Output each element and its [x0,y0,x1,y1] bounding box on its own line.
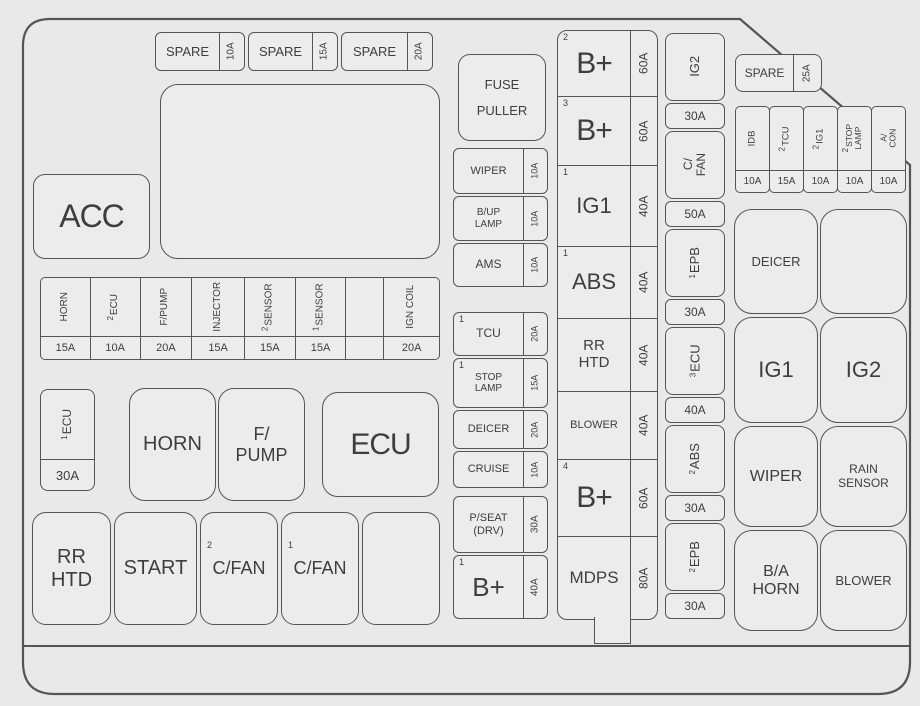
fuse-cell-sensor2: 2SENSOR 15A [245,278,296,359]
amp-rating: 15A [320,43,331,61]
fuse-label: B+ [576,114,612,148]
amp-rating: 15A [296,336,346,359]
fuse-label: AMS [475,258,501,271]
fuse-label: B+ [576,47,612,81]
fuse-tcu: 1TCU 20A [453,312,548,356]
relay-label: WIPER [750,468,802,486]
fuse-row-bplus3: 3B+ 60A [558,97,657,166]
fuse-label: B+ [576,481,612,515]
fuse-row-rr-htd: RR HTD 40A [558,319,657,392]
horn-relay: HORN [129,388,216,501]
fuse-bup-lamp: B/UP LAMP 10A [453,196,548,241]
fuse-ams: AMS 10A [453,243,548,287]
fuse-epb1-label: 1EPB [665,229,725,297]
amp-rating: 20A [141,336,192,359]
relay-ba-horn: B/A HORN [734,530,818,631]
fuse-row-bplus4: 4B+ 60A [558,460,657,537]
fuse-label: IG1 [815,128,826,143]
fuse-row-abs: 1ABS 40A [558,247,657,319]
fuse-cell-ign-coil: IGN COIL 20A [384,278,439,359]
relay-empty-slot [820,209,907,314]
fuse-label: INJECTOR [212,282,223,332]
amp-rating: 20A [415,43,426,61]
fuse-label: IGN COIL [405,285,416,329]
spare-fuse-2: SPARE 15A [248,32,338,71]
amp-rating [346,336,383,359]
fuse-epb2-amp: 30A [665,593,725,619]
fuse-ecu3-label: 3ECU [665,327,725,395]
amp-rating: 10A [227,43,238,61]
start-relay: START [114,512,197,625]
spare-fuse-3: SPARE 20A [341,32,433,71]
fuse-puller-label: FUSE PULLER [477,72,528,124]
fuse-cell-sensor1: 1SENSOR 15A [296,278,347,359]
amp-rating: 40A [638,344,651,365]
amp-rating: 60A [638,487,651,508]
fuse-label: IDB [747,130,758,146]
relay-label: START [124,557,188,580]
fuse-cfan-label: C/ FAN [665,131,725,199]
fuse-label: ECU [60,409,74,434]
fuse-label: EPB [687,247,702,273]
fuse-ecu3-amp: 40A [665,397,725,423]
amp-rating: 80A [638,567,651,588]
main-fuse-column: 2B+ 60A 3B+ 60A 1IG1 40A 1ABS 40A RR HTD… [557,30,658,620]
fuse-row-ig1: 1IG1 40A [558,166,657,247]
fuse-label: BLOWER [570,419,618,431]
fuse-ig2-amp: 30A [665,103,725,129]
cfan2-relay: 2 C/FAN [200,512,278,625]
relay-label: IG2 [846,357,881,383]
fuse-label: EPB [687,541,702,567]
fuse-row-mdps: MDPS 80A [558,537,657,619]
engine-fuse-strip: HORN 15A 2ECU 10A F/PUMP 20A INJECTOR 15… [40,277,440,360]
fuse-label: P/SEAT (DRV) [469,512,507,537]
relay-label: RR HTD [51,546,92,591]
fuse-deicer: DEICER 20A [453,410,548,449]
amp-rating: 20A [531,421,540,437]
fuse-epb2-label: 2EPB [665,523,725,591]
fusebox-diagram: SPARE 10A SPARE 15A SPARE 20A FUSE PULLE… [0,0,920,706]
amp-rating: 60A [638,120,651,141]
amp-rating: 40A [530,578,541,596]
fuse-cell-horn: HORN 15A [41,278,91,359]
relay-ig2: IG2 [820,317,907,423]
fuse-label: TCU [781,126,792,146]
fuel-pump-relay: F/ PUMP [218,388,305,501]
fuse-wiper: WIPER 10A [453,148,548,194]
relay-ig1: IG1 [734,317,818,423]
ecu-relay: ECU [322,392,439,497]
amp-rating: 10A [872,170,905,192]
amp-rating: 30A [530,516,541,534]
fuse-label: A/ CON [878,129,897,148]
acc-box: ACC [33,174,150,259]
fuse-cell-ig1-2: 2IG1 10A [803,106,838,193]
fuse-label: SENSOR [314,283,325,325]
relay-label: HORN [143,433,202,456]
relay-label: F/ PUMP [235,424,287,464]
rr-htd-relay: RR HTD [32,512,111,625]
relay-label: B/A HORN [752,563,799,599]
fuse-label: MDPS [569,568,618,587]
fuse-puller-box: FUSE PULLER [458,54,546,141]
relay-rain-sensor: RAIN SENSOR [820,426,907,527]
relay-label: C/FAN [212,558,265,579]
amp-rating: 15A [192,336,244,359]
amp-rating: 30A [41,459,94,490]
amp-rating: 10A [838,170,871,192]
fuse-label: B+ [472,572,505,603]
amp-rating: 15A [770,170,803,192]
fuse-cfan-amp: 50A [665,201,725,227]
amp-rating: 60A [638,53,651,74]
relay-label: C/FAN [293,558,346,579]
fuse-cell-ecu2: 2ECU 10A [91,278,141,359]
spare-fuse-1: SPARE 10A [155,32,245,71]
fuse-row-blower: BLOWER 40A [558,392,657,460]
empty-reserved-box [160,84,440,259]
fuse-label: DEICER [468,423,510,435]
amp-rating: 25A [802,64,813,82]
spare-fuse-label: SPARE [736,55,793,91]
relay-blower: BLOWER [820,530,907,631]
fuse-cell-injector: INJECTOR 15A [192,278,245,359]
fuse-label: RR HTD [579,338,610,372]
amp-rating: 40A [638,415,651,436]
fuse-label: TCU [476,327,501,340]
fuse-cell-empty [346,278,384,359]
cfan1-relay: 1 C/FAN [281,512,359,625]
relay-wiper: WIPER [734,426,818,527]
fuse-label: ABS [687,443,702,469]
amp-rating: 10A [91,336,140,359]
fuse-cell-idb: IDB 10A [735,106,770,193]
fuse-label: CRUISE [468,463,510,475]
amp-rating: 40A [638,272,651,293]
relay-label: ECU [350,428,410,462]
amp-rating: 10A [531,257,540,273]
fuse-label: C/ FAN [681,153,708,176]
fuse-label: STOP LAMP [475,372,502,394]
fuse-cell-acon: A/ CON 10A [871,106,906,193]
amp-rating: 10A [531,461,540,477]
fuse-label: F/PUMP [160,288,171,326]
fuse-row-bplus2: 2B+ 60A [558,31,657,97]
fuse-cell-fpump: F/PUMP 20A [141,278,193,359]
fuse-stop-lamp: 1STOP LAMP 15A [453,358,548,408]
amp-rating: 10A [804,170,837,192]
relay-label: DEICER [751,254,800,269]
amp-rating: 20A [384,336,439,359]
fuse-abs2-amp: 30A [665,495,725,521]
fuse-pseat-drv: P/SEAT (DRV) 30A [453,496,548,553]
fuse-label: ECU [687,345,702,372]
ecu1-fuse: 1ECU 30A [40,389,95,491]
fuse-epb1-amp: 30A [665,299,725,325]
acc-label: ACC [59,198,124,235]
fuse-cruise: CRUISE 10A [453,451,548,488]
amp-rating: 40A [638,195,651,216]
fuse-label: SENSOR [264,283,275,325]
empty-relay-slot [362,512,440,625]
relay-label: RAIN SENSOR [838,463,889,490]
relay-label: BLOWER [835,573,891,588]
spare-fuse-label: SPARE [249,33,312,70]
spare-fuse-label: SPARE [342,33,407,70]
amp-rating: 15A [245,336,295,359]
fuse-abs2-label: 2ABS [665,425,725,493]
fuse-label: STOP LAMP [844,124,863,150]
amp-rating: 10A [531,163,540,179]
fuse-cell-tcu2: 2TCU 15A [769,106,804,193]
amp-rating: 15A [41,336,90,359]
fuse-cell-stop-lamp2: 2STOP LAMP 10A [837,106,872,193]
fuse-label: IG2 [687,56,702,77]
fuse-label: ABS [572,270,616,295]
spare-fuse-4: SPARE 25A [735,54,822,92]
fuse-label: ECU [109,294,120,315]
mdps-tab [594,617,631,644]
fuse-label: HORN [59,292,70,321]
fuse-label: B/UP LAMP [475,207,502,229]
fuse-ig2-label: IG2 [665,33,725,101]
spare-fuse-label: SPARE [156,33,219,70]
fuse-label: IG1 [576,194,611,219]
amp-rating: 15A [531,375,540,391]
amp-rating: 10A [736,170,769,192]
fuse-label: WIPER [470,165,506,177]
amp-rating: 10A [531,210,540,226]
relay-label: IG1 [758,357,793,383]
fuse-bplus1: 1B+ 40A [453,555,548,619]
relay-deicer: DEICER [734,209,818,314]
amp-rating: 20A [531,326,540,342]
